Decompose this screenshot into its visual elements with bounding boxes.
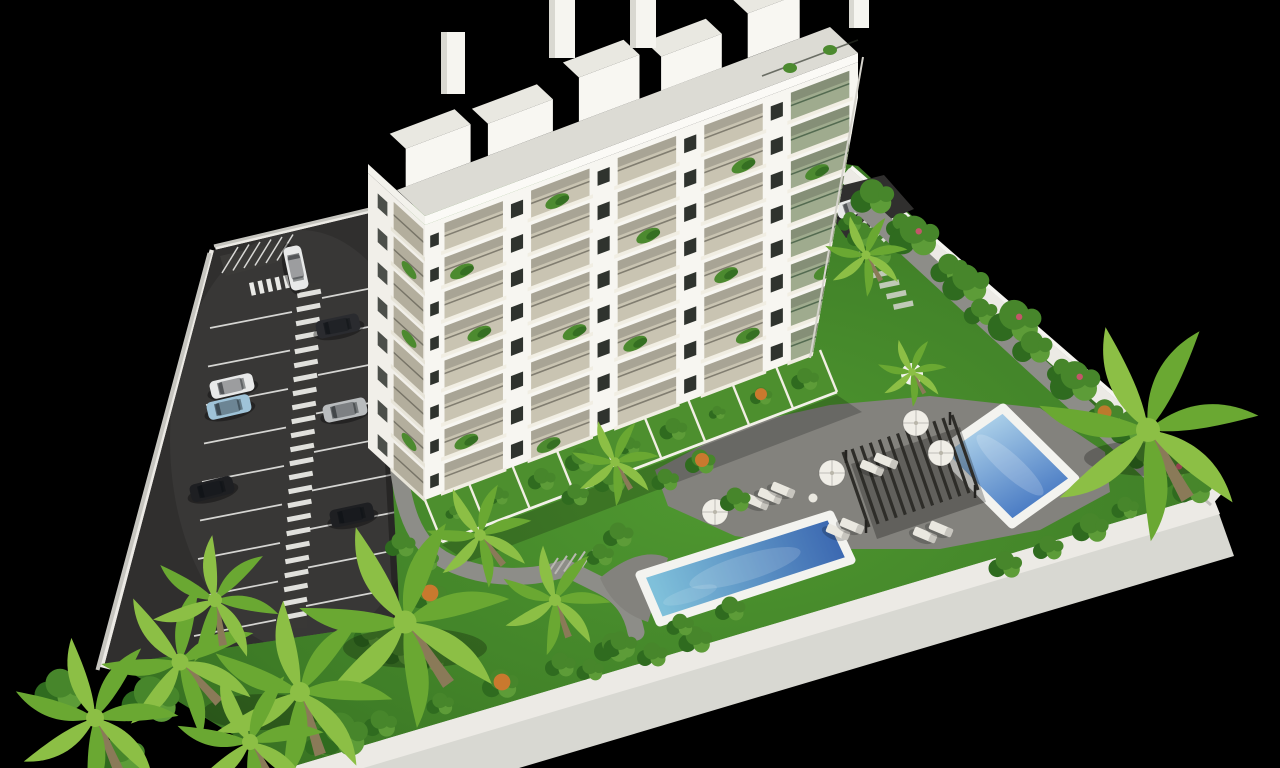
- orange-shrub: [755, 388, 767, 400]
- flower-accent: [916, 228, 922, 234]
- orange-shrub: [695, 453, 709, 467]
- architectural-render: Aerial 3D architectural rendering, on a …: [0, 0, 1280, 768]
- flower-accent: [1077, 374, 1083, 380]
- parasol: [819, 460, 845, 486]
- deck-table: [809, 494, 818, 503]
- orange-shrub: [494, 674, 511, 691]
- parasol: [928, 440, 954, 466]
- flower-accent: [1016, 314, 1022, 320]
- render-canvas: [0, 0, 1280, 768]
- parasol: [903, 410, 929, 436]
